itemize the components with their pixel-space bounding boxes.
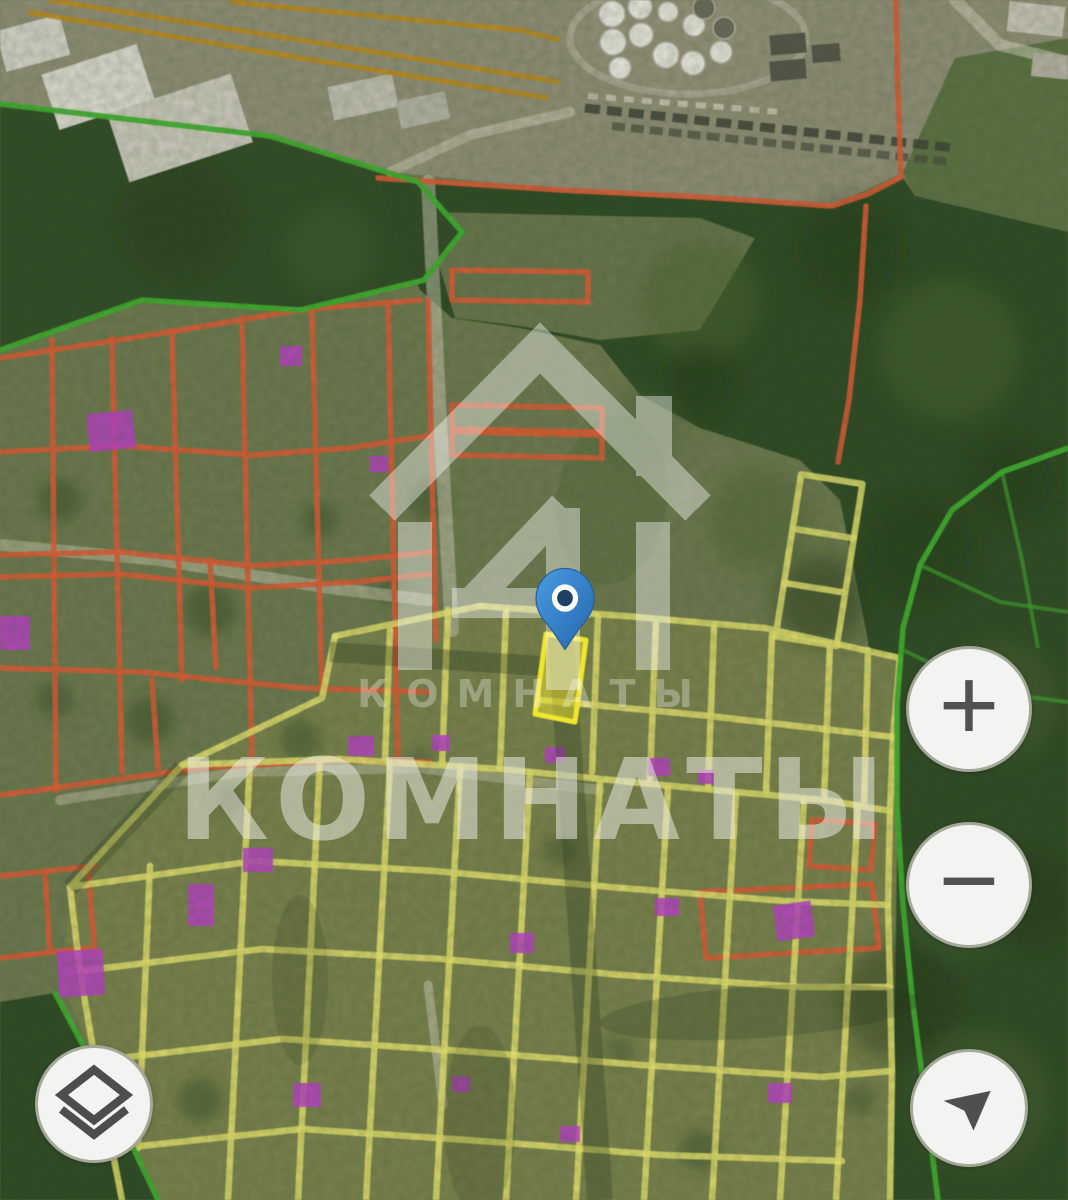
layers-icon xyxy=(38,1048,150,1160)
zoom-in-button[interactable]: + xyxy=(906,646,1032,772)
layers-button[interactable] xyxy=(35,1045,153,1163)
map-canvas[interactable]: КОМНАТЫ КОМНАТЫ xyxy=(0,0,1068,1200)
zoom-out-button[interactable]: − xyxy=(906,822,1032,948)
map-pin-icon[interactable] xyxy=(532,566,598,652)
plus-icon: + xyxy=(939,653,1000,757)
map-viewport: КОМНАТЫ КОМНАТЫ + − xyxy=(0,0,1068,1200)
navigation-arrow-icon xyxy=(913,1052,1025,1164)
minus-icon: − xyxy=(939,829,1000,933)
compass-button[interactable] xyxy=(910,1049,1028,1167)
